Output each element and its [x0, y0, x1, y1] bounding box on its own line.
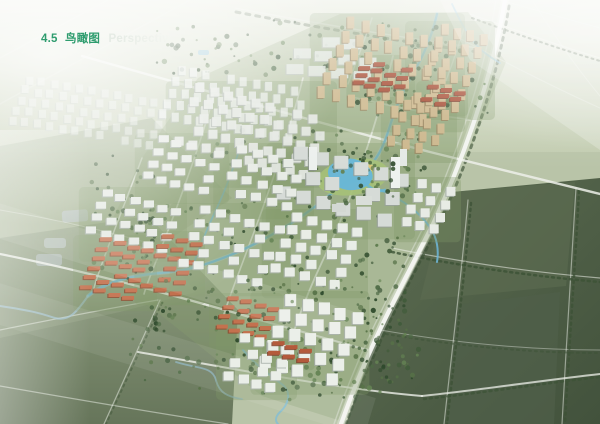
building	[268, 351, 280, 355]
tree	[378, 390, 381, 393]
tree	[375, 285, 380, 290]
tree	[387, 349, 390, 352]
building	[248, 350, 258, 359]
building	[414, 193, 423, 202]
tree	[370, 333, 372, 335]
tree	[393, 284, 398, 289]
building	[273, 326, 284, 338]
title-chinese: 鸟瞰图	[65, 33, 100, 45]
tree	[384, 298, 387, 301]
tree	[196, 318, 199, 321]
building	[421, 208, 430, 217]
building	[277, 359, 287, 368]
building	[286, 345, 298, 349]
building	[273, 341, 285, 345]
tree	[376, 343, 379, 346]
building	[297, 191, 311, 204]
tree	[362, 190, 365, 193]
tree	[344, 201, 349, 206]
tree	[376, 317, 378, 319]
building	[352, 228, 362, 237]
building	[219, 314, 230, 318]
building	[289, 329, 300, 341]
building	[254, 337, 264, 346]
tree	[330, 352, 333, 355]
building	[285, 268, 295, 277]
tree	[375, 361, 378, 364]
tree	[226, 311, 229, 314]
tree	[381, 365, 385, 369]
building	[296, 243, 306, 252]
tree	[282, 283, 285, 286]
building	[407, 205, 416, 214]
tree	[333, 170, 336, 173]
tree	[370, 365, 374, 369]
building	[288, 225, 298, 234]
tree	[343, 287, 347, 291]
building	[338, 223, 348, 232]
building	[317, 233, 327, 242]
building	[333, 359, 344, 371]
tree	[352, 380, 356, 384]
building	[327, 250, 337, 259]
tree	[385, 375, 388, 378]
tree	[339, 384, 341, 386]
building	[301, 230, 311, 239]
tree	[376, 183, 380, 187]
building	[341, 255, 351, 264]
tree	[327, 195, 332, 200]
building	[436, 213, 445, 222]
tree	[358, 347, 361, 350]
tree	[360, 291, 362, 293]
building	[275, 225, 285, 233]
tree	[364, 341, 368, 345]
tree	[351, 286, 353, 288]
tree	[374, 338, 379, 343]
tree	[236, 312, 241, 317]
building	[297, 358, 309, 362]
tree	[358, 305, 363, 310]
tree	[363, 349, 366, 352]
tree	[354, 263, 358, 267]
tree	[387, 363, 390, 366]
tree	[402, 360, 407, 365]
tree	[397, 363, 402, 368]
tree	[385, 189, 390, 194]
tree	[372, 316, 374, 318]
tree	[308, 205, 311, 208]
building	[247, 323, 258, 327]
tree	[370, 329, 373, 332]
tree	[403, 291, 406, 294]
building	[418, 179, 427, 188]
tree	[365, 276, 367, 278]
building	[240, 333, 250, 342]
tree	[384, 238, 389, 243]
tree	[398, 322, 402, 326]
building	[276, 252, 286, 261]
tree	[305, 256, 309, 260]
tree	[371, 262, 374, 265]
section-number: 4.5	[41, 33, 58, 45]
building	[347, 241, 357, 250]
tree	[406, 189, 409, 192]
tree	[320, 292, 324, 296]
tree	[358, 259, 362, 263]
title-english: Perspective	[109, 33, 176, 45]
tree	[400, 193, 405, 198]
tree	[386, 367, 389, 370]
building	[283, 355, 295, 359]
building	[308, 216, 318, 225]
building	[281, 239, 291, 248]
building	[330, 280, 340, 289]
building	[291, 255, 301, 264]
tree	[366, 360, 368, 362]
tree	[402, 304, 405, 307]
tree	[313, 290, 318, 295]
tree	[387, 249, 392, 254]
tree	[388, 380, 392, 384]
tree	[408, 334, 413, 339]
tree	[163, 330, 166, 333]
tree	[357, 303, 360, 306]
page-title: 4.5 鸟瞰图 Perspective	[41, 30, 175, 46]
tree	[156, 322, 161, 327]
tree	[371, 308, 376, 313]
tree	[381, 323, 383, 325]
tree	[269, 238, 273, 242]
tree	[204, 306, 206, 308]
building	[258, 265, 268, 273]
building	[378, 214, 392, 227]
aerial-rendering-page: 4.5 鸟瞰图 Perspective	[0, 0, 600, 424]
tree	[153, 315, 155, 317]
building	[337, 268, 347, 277]
tree	[367, 385, 372, 390]
tree	[403, 235, 405, 237]
tree	[293, 264, 296, 267]
tree	[341, 170, 345, 174]
building	[327, 373, 338, 385]
building	[432, 183, 441, 192]
tree	[364, 253, 369, 258]
tree	[335, 287, 337, 289]
tree	[416, 347, 421, 352]
building	[416, 221, 425, 230]
tree	[402, 335, 405, 338]
building	[300, 349, 312, 353]
tree	[378, 279, 381, 282]
tree	[378, 345, 380, 347]
tree	[410, 373, 415, 378]
southeast-field-patch-b	[448, 292, 560, 424]
tree	[379, 360, 382, 363]
building	[271, 263, 281, 272]
tree	[308, 373, 313, 378]
building	[311, 246, 321, 255]
tree	[351, 196, 355, 200]
building	[286, 189, 296, 197]
tree	[363, 369, 367, 373]
tree	[168, 307, 171, 310]
building	[217, 325, 228, 329]
tree	[388, 305, 391, 308]
tree	[389, 178, 393, 182]
tree	[214, 316, 218, 320]
tree	[402, 308, 407, 313]
tree	[367, 297, 370, 300]
building	[264, 252, 274, 260]
tree	[391, 246, 394, 249]
tree	[366, 322, 369, 325]
tree	[402, 298, 406, 302]
tree	[359, 184, 364, 189]
tree	[360, 358, 365, 363]
tree	[391, 341, 395, 345]
tree	[375, 244, 378, 247]
tree	[392, 195, 395, 198]
tree	[354, 354, 359, 359]
tree	[243, 353, 246, 356]
tree	[286, 215, 289, 218]
tree	[361, 385, 365, 389]
tree	[401, 354, 405, 358]
tree	[405, 329, 407, 331]
building	[277, 172, 287, 180]
tree	[279, 286, 282, 289]
tree	[376, 292, 380, 296]
tree	[393, 260, 397, 264]
tree	[391, 307, 394, 310]
building	[426, 196, 435, 205]
tree	[343, 219, 346, 222]
building	[315, 353, 326, 365]
tree	[416, 354, 419, 357]
tree	[360, 271, 364, 275]
tree	[396, 237, 399, 240]
building	[441, 201, 450, 210]
building	[386, 192, 400, 205]
tree	[374, 298, 377, 301]
tree	[366, 330, 368, 332]
building	[260, 326, 271, 330]
building	[430, 224, 439, 233]
tree	[357, 177, 360, 180]
tree	[380, 313, 383, 316]
tree	[400, 346, 403, 349]
tree	[352, 345, 355, 348]
building	[447, 187, 456, 196]
tree	[384, 361, 386, 363]
building	[292, 175, 302, 183]
tree	[196, 310, 201, 315]
tree	[396, 340, 399, 343]
civic-podium	[332, 204, 346, 212]
tree	[405, 365, 410, 370]
building	[403, 217, 412, 226]
building	[307, 260, 317, 269]
tree	[397, 343, 400, 346]
building	[300, 271, 310, 280]
tree	[339, 378, 343, 382]
civic-podium	[356, 196, 372, 205]
building	[339, 344, 350, 356]
aerial-rendering	[0, 0, 600, 424]
building	[357, 207, 371, 220]
building	[332, 238, 342, 247]
tree	[316, 371, 321, 376]
building	[282, 202, 292, 210]
tree	[389, 326, 392, 329]
building	[229, 329, 240, 333]
tree	[396, 375, 399, 378]
building	[306, 172, 320, 185]
tree	[381, 376, 384, 379]
building	[292, 213, 302, 222]
building	[234, 320, 245, 324]
tree	[407, 363, 409, 365]
building	[316, 277, 326, 286]
tree	[198, 387, 201, 390]
tree	[392, 242, 396, 246]
tree	[297, 283, 299, 285]
tree	[133, 318, 137, 322]
tree	[322, 246, 326, 250]
tree	[161, 309, 165, 313]
tree	[347, 342, 349, 344]
tree	[397, 319, 400, 322]
tree	[326, 270, 330, 274]
tree	[170, 315, 174, 319]
building	[325, 177, 339, 190]
tree	[144, 379, 146, 381]
tree	[402, 265, 406, 269]
building	[322, 220, 332, 229]
tree	[353, 339, 356, 342]
tree	[340, 279, 343, 282]
tree	[304, 365, 309, 370]
